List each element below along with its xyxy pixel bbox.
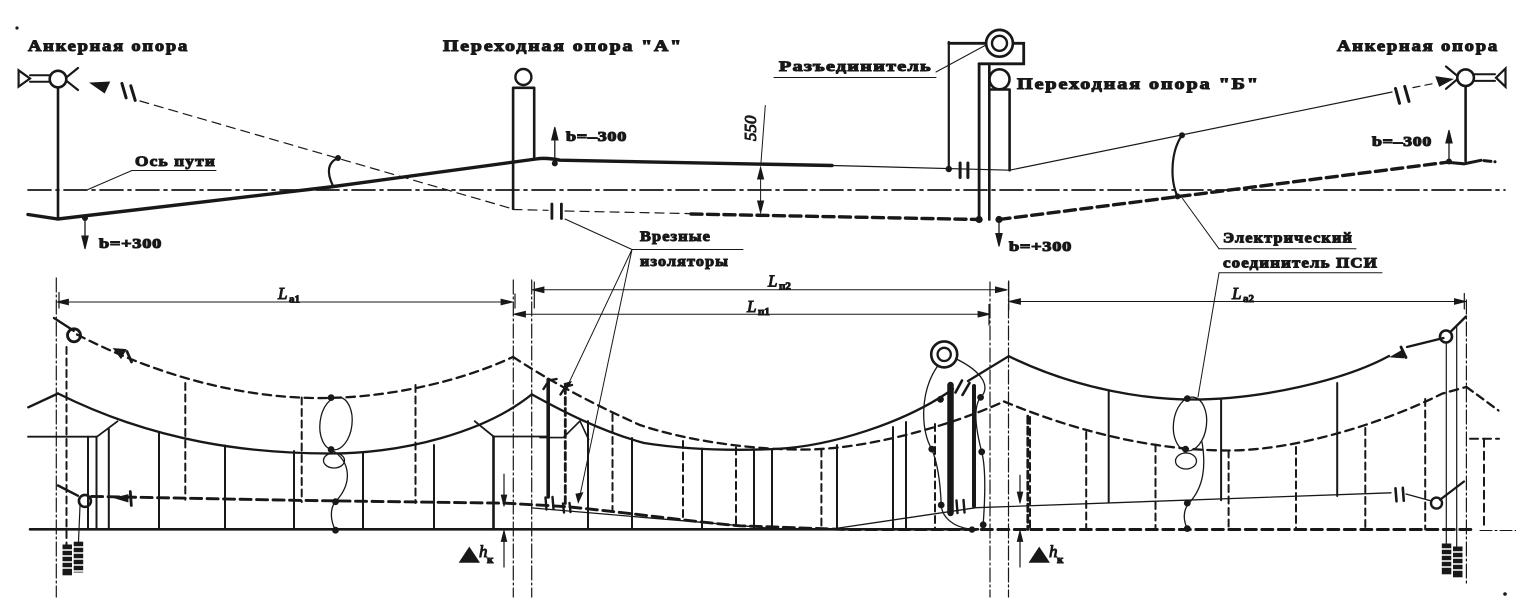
svg-text:изоляторы: изоляторы — [640, 254, 729, 270]
svg-text:Переходная опора "А": Переходная опора "А" — [443, 38, 683, 55]
svg-text:соединитель ПСИ: соединитель ПСИ — [1223, 256, 1378, 272]
svg-text:Врезные: Врезные — [640, 229, 711, 245]
svg-text:а2: а2 — [1243, 293, 1255, 305]
svg-text:Анкерная опора: Анкерная опора — [28, 38, 189, 55]
svg-text:Переходная опора "Б": Переходная опора "Б" — [1017, 76, 1260, 93]
svg-text:b=–300: b=–300 — [1372, 134, 1432, 149]
svg-text:b=+300: b=+300 — [1009, 239, 1072, 254]
svg-text:Разъединитель: Разъединитель — [779, 59, 932, 75]
svg-text:Анкерная опора: Анкерная опора — [1337, 38, 1499, 55]
svg-text:к: к — [487, 554, 494, 566]
svg-text:а1: а1 — [289, 294, 300, 306]
svg-text:L: L — [746, 297, 756, 316]
svg-text:Ось пути: Ось пути — [135, 154, 216, 170]
svg-text:L: L — [767, 272, 777, 291]
svg-text:b=–300: b=–300 — [566, 129, 627, 144]
svg-text:Электрический: Электрический — [1223, 231, 1353, 247]
svg-text:550: 550 — [741, 115, 760, 141]
svg-text:L: L — [277, 284, 287, 303]
svg-text:к: к — [1057, 554, 1064, 566]
svg-text:п1: п1 — [758, 306, 770, 318]
svg-text:b=+300: b=+300 — [99, 236, 162, 251]
svg-text:п2: п2 — [779, 281, 791, 293]
svg-text:L: L — [1231, 284, 1241, 303]
